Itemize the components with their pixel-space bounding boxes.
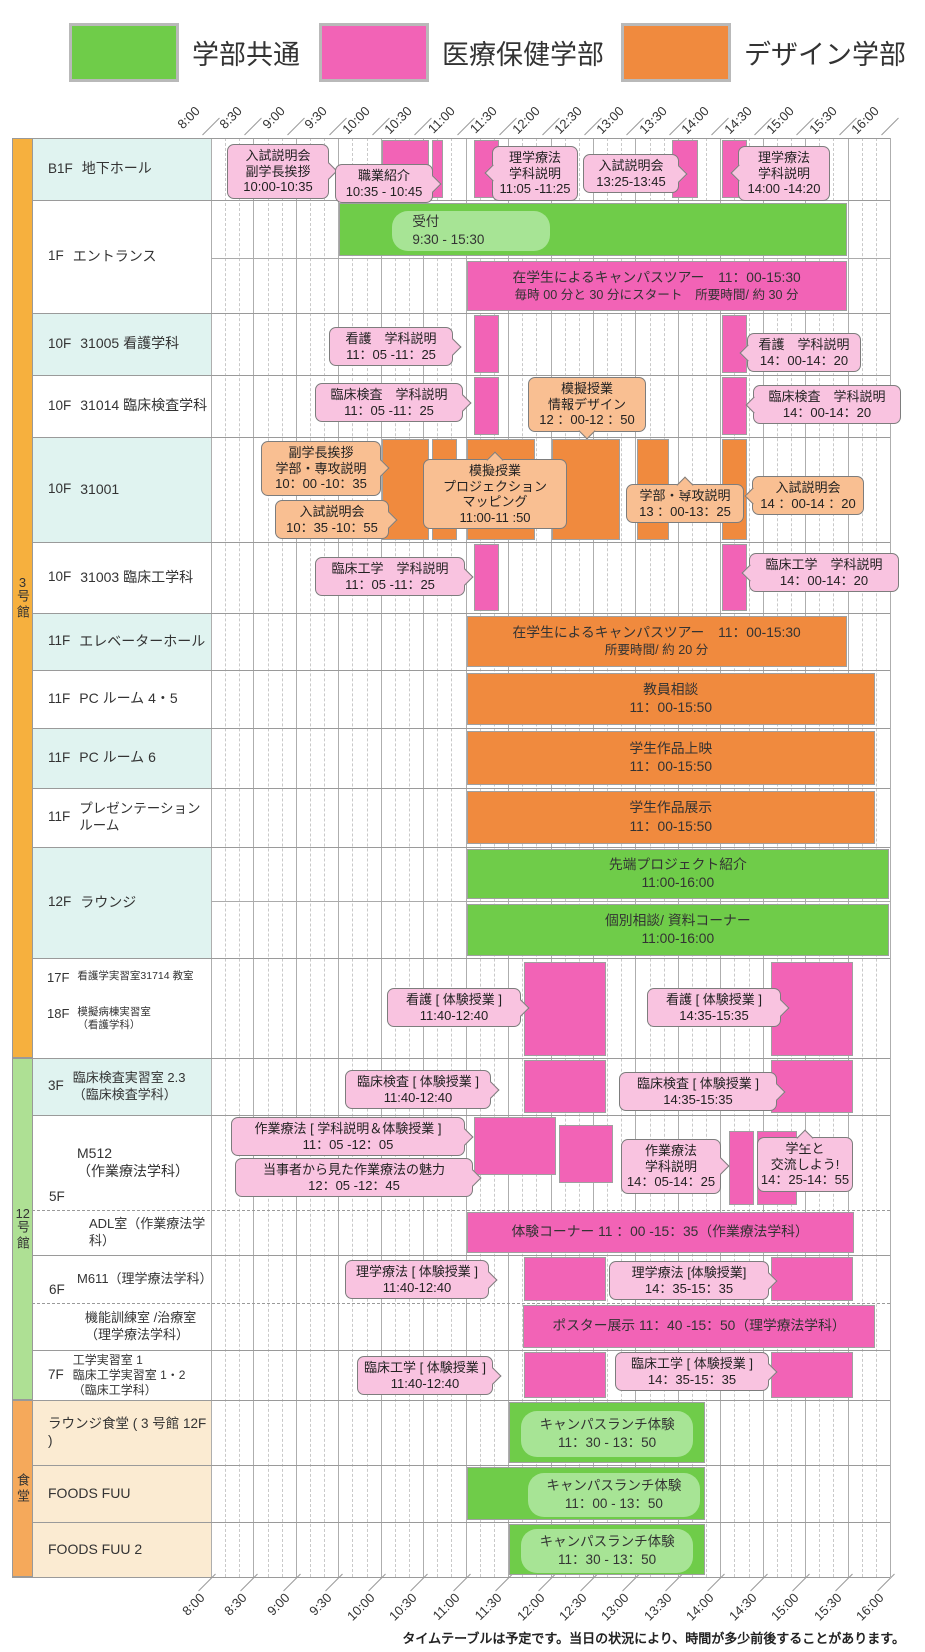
room-name: 看護学実習室31714 教室 <box>77 970 193 983</box>
event-pill: キャンパスランチ体験11：00 - 13：50 <box>528 1473 700 1517</box>
row-events: キャンパスランチ体験11：00 - 13：50 <box>211 1465 890 1522</box>
room-name-line: ラウンジ <box>80 894 136 912</box>
room-name-line: FOODS FUU 2 <box>48 1541 142 1559</box>
row-events: 受付9:30 - 15:30在学生によるキャンパスツアー 11：00-15:30… <box>211 200 890 313</box>
room-name-line: エレベーターホール <box>79 633 205 651</box>
event-block <box>474 377 499 435</box>
event-callout-line: 11:40-12:40 <box>390 1008 518 1024</box>
event-banner: キャンパスランチ体験11：30 - 13：50 <box>509 1402 705 1463</box>
event-callout-line: 14：35-15：35 <box>618 1372 766 1388</box>
floor-label: 11F <box>48 809 70 826</box>
event-pill-line: キャンパスランチ体験 <box>521 1416 693 1434</box>
event-callout-line: 13 ：00-13：25 <box>629 504 741 520</box>
room-name-line: 地下ホール <box>82 160 152 178</box>
row-events: 教員相談11：00-15:50 <box>211 670 890 728</box>
event-callout-line: 副学長挨拶 <box>230 164 326 180</box>
row-events: 在学生によるキャンパスツアー 11：00-15:30所要時間/ 約 20 分 <box>211 613 890 670</box>
event-callout: 看護 [ 体験授業 ]11:40-12:40 <box>387 988 521 1027</box>
row-events: ポスター展示 11：40 -15：50（理学療法学科） <box>211 1303 890 1350</box>
grid-line <box>890 138 891 1577</box>
event-callout: 模擬授業情報デザイン12 ：00-12 ：50 <box>528 377 646 432</box>
event-pill-line: 9:30 - 15:30 <box>412 231 550 249</box>
building-bar: 3号館 <box>12 138 33 1058</box>
building-bar-label: 3号館 <box>13 576 32 621</box>
row-events: 先端プロジェクト紹介11:00-16:00個別相談/ 資料コーナー11:00-1… <box>211 847 890 958</box>
room-name: 31005 看護学科 <box>80 335 179 353</box>
row-label: 17F看護学実習室31714 教室18F模擬病棟実習室（看護学科） <box>33 958 211 1058</box>
legend-label-medical: 医療保健学部 <box>442 33 604 72</box>
legend-item-common: 学部共通 <box>69 23 300 82</box>
event-banner: 先端プロジェクト紹介11:00-16:00 <box>467 849 889 899</box>
row-label: 11FPC ルーム 4・5 <box>33 670 211 728</box>
event-pill-line: キャンパスランチ体験 <box>521 1533 693 1551</box>
event-callout-line: 看護 学科説明 <box>750 337 858 353</box>
event-callout-line: 学科説明 <box>495 166 575 182</box>
event-callout: 理学療法 [体験授業]14：35-15：35 <box>609 1261 769 1300</box>
room-name: ADL室（作業療法学科） <box>89 1216 211 1249</box>
event-callout-line: 看護 学科説明 <box>332 331 450 347</box>
event-banner: キャンパスランチ体験11：30 - 13：50 <box>509 1524 705 1575</box>
row-events: 臨床工学 [ 体験授業 ]11:40-12:40臨床工学 [ 体験授業 ]14：… <box>211 1350 890 1400</box>
footnote: タイムテーブルは予定です。当日の状況により、時間が多少前後することがあります。 <box>0 1628 905 1647</box>
event-callout-line: 14:00 -14:20 <box>741 181 827 197</box>
row-label: ラウンジ食堂 ( 3 号館 12F ) <box>33 1400 211 1465</box>
event-block <box>722 544 747 611</box>
room-name: M512（作業療法学科） <box>77 1145 189 1180</box>
floor-label: 7F <box>48 1367 64 1384</box>
event-banner-line: 11:00-16:00 <box>642 874 715 892</box>
event-callout-line: マッピング <box>426 494 564 510</box>
event-banner: 教員相談11：00-15:50 <box>467 673 875 725</box>
event-pill-line: 11：30 - 13：50 <box>521 1434 693 1452</box>
event-callout-line: 13:25-13:45 <box>586 174 676 190</box>
event-callout-line: 11:40-12:40 <box>348 1090 488 1106</box>
event-callout-line: 看護 [ 体験授業 ] <box>650 992 778 1008</box>
row-events: 体験コーナー 11 ：00 -15：35（作業療法学科） <box>211 1210 890 1255</box>
event-block <box>524 1352 606 1398</box>
room-name: エレベーターホール <box>79 633 205 651</box>
event-callout: 理学療法学科説明14:00 -14:20 <box>738 146 830 201</box>
event-callout: 看護 学科説明11：05 -11：25 <box>329 327 453 366</box>
room-name-line: ラウンジ食堂 ( 3 号館 12F ) <box>48 1416 211 1450</box>
building-name: 食堂 <box>15 1473 30 1505</box>
floor-label: 11F <box>48 750 70 767</box>
event-banner-line: 11：00-15:50 <box>629 758 712 776</box>
event-callout: 副学長挨拶学部・専攻説明10：00 -10：35 <box>261 441 381 496</box>
event-block <box>771 1352 853 1398</box>
row-label: 10F31014 臨床検査学科 <box>33 375 211 437</box>
event-callout: 臨床検査 [ 体験授業 ]11:40-12:40 <box>345 1070 491 1109</box>
room-name: 31003 臨床工学科 <box>80 569 193 587</box>
event-block <box>559 1125 613 1183</box>
event-callout: 理学療法 [ 体験授業 ]11:40-12:40 <box>345 1260 489 1299</box>
room-name: FOODS FUU 2 <box>48 1541 142 1559</box>
event-callout: 職業紹介10:35 - 10:45 <box>335 164 433 203</box>
event-pill-line: 受付 <box>412 213 550 231</box>
row-label: FOODS FUU <box>33 1465 211 1522</box>
event-callout-line: 臨床検査 学科説明 <box>318 387 460 403</box>
event-banner: 学生作品上映11：00-15:50 <box>467 731 875 785</box>
event-callout-line: 入試説明会 <box>230 148 326 164</box>
event-callout-line: 理学療法 [ 体験授業 ] <box>348 1264 486 1280</box>
building-bar: 12号館 <box>12 1058 33 1400</box>
event-callout-line: 14：25-14：55 <box>760 1172 850 1188</box>
event-banner-line: 体験コーナー 11 ：00 -15：35（作業療法学科） <box>512 1223 809 1241</box>
room-name: 工学実習室 1臨床工学実習室 1・2（臨床工学科） <box>73 1353 186 1398</box>
event-callout-line: 11：05 -11：25 <box>318 577 462 593</box>
event-callout: 臨床工学 学科説明14：00-14：20 <box>749 553 899 592</box>
timetable-grid: B1F地下ホール入試説明会副学長挨拶10:00-10:35職業紹介10:35 -… <box>12 138 890 1577</box>
event-callout: 入試説明会副学長挨拶10:00-10:35 <box>227 144 329 199</box>
event-callout-line: 10:35 - 10:45 <box>338 184 430 200</box>
event-banner-line: 毎時 00 分と 30 分にスタート 所要時間/ 約 30 分 <box>515 287 799 304</box>
row-events: 作業療法 [ 学科説明＆体験授業 ]11：05 -12：05当事者から見た作業療… <box>211 1115 890 1210</box>
row-events: 学生作品展示11：00-15:50 <box>211 788 890 847</box>
legend-label-design: デザイン学部 <box>744 33 906 72</box>
room-name-line: 機能訓練室 /治療室 <box>85 1310 196 1326</box>
row-events: 理学療法 [ 体験授業 ]11:40-12:40理学療法 [体験授業]14：35… <box>211 1255 890 1303</box>
event-callout-line: 学部・専攻説明 <box>264 461 378 477</box>
row-label: 11Fプレゼンテーションルーム <box>33 788 211 847</box>
event-callout-line: 14：00-14：20 <box>750 353 858 369</box>
event-banner: キャンパスランチ体験11：00 - 13：50 <box>467 1467 705 1520</box>
event-callout-line: 14：00-14：20 <box>756 405 898 421</box>
event-banner-line: 学生作品上映 <box>629 740 712 758</box>
event-block <box>722 315 747 373</box>
row-events: キャンパスランチ体験11：30 - 13：50 <box>211 1400 890 1465</box>
event-callout-line: 11:05 -11:25 <box>495 181 575 197</box>
event-callout-line: 職業紹介 <box>338 168 430 184</box>
room-name-line: M512 <box>77 1145 189 1163</box>
room-name: M611（理学療法学科） <box>77 1271 211 1287</box>
room-name-line: 模擬病棟実習室 <box>77 1006 151 1019</box>
event-callout-line: 理学療法 <box>495 150 575 166</box>
event-banner-line: 所要時間/ 約 20 分 <box>605 642 709 659</box>
room-name-line: PC ルーム 6 <box>79 749 156 767</box>
floor-label: B1F <box>48 161 73 178</box>
row-label: 11Fエレベーターホール <box>33 613 211 670</box>
event-block <box>771 1257 853 1301</box>
event-callout-line: 臨床検査 [ 体験授業 ] <box>622 1076 774 1092</box>
room-name: ラウンジ食堂 ( 3 号館 12F ) <box>48 1416 211 1450</box>
event-banner: 体験コーナー 11 ：00 -15：35（作業療法学科） <box>467 1212 854 1253</box>
row-events: 臨床検査 学科説明11：05 -11：25模擬授業情報デザイン12 ：00-12… <box>211 375 890 437</box>
event-callout-line: 理学療法 [体験授業] <box>612 1265 766 1281</box>
event-callout: 作業療法 [ 学科説明＆体験授業 ]11：05 -12：05 <box>231 1117 465 1156</box>
row-label: 10F31003 臨床工学科 <box>33 542 211 613</box>
event-callout-line: 臨床工学 [ 体験授業 ] <box>618 1356 766 1372</box>
event-banner-line: 在学生によるキャンパスツアー 11：00-15:30 <box>512 624 800 642</box>
room-name: 地下ホール <box>82 160 152 178</box>
row-label: 1Fエントランス <box>33 200 211 313</box>
floor-label: 11F <box>48 633 70 650</box>
row-label: 5FM512（作業療法学科） <box>33 1115 211 1210</box>
event-callout-line: 臨床工学 学科説明 <box>318 561 462 577</box>
event-banner-line: 11：00-15:50 <box>629 818 712 836</box>
event-callout-line: 学科説明 <box>741 166 827 182</box>
event-callout-line: 学科説明 <box>624 1159 718 1175</box>
event-callout: 理学療法学科説明11:05 -11:25 <box>492 146 578 201</box>
room-name-line: PC ルーム 4・5 <box>79 690 177 708</box>
room-label-group: 17F看護学実習室31714 教室 <box>47 970 194 986</box>
room-name-line: 工学実習室 1 <box>73 1353 186 1368</box>
event-banner-line: 学生作品展示 <box>629 799 712 817</box>
event-banner: ポスター展示 11：40 -15：50（理学療法学科） <box>523 1305 875 1348</box>
room-name: PC ルーム 6 <box>79 749 156 767</box>
row-label: 6FM611（理学療法学科） <box>33 1255 211 1303</box>
room-name-line: 31001 <box>80 481 119 499</box>
room-name: 機能訓練室 /治療室（理学療法学科） <box>85 1310 196 1343</box>
event-callout: 作業療法学科説明14：05-14：25 <box>621 1139 721 1194</box>
event-callout: 臨床検査 学科説明14：00-14：20 <box>753 385 901 424</box>
room-name: 臨床検査実習室 2.3（臨床検査学科） <box>73 1070 186 1103</box>
event-callout-line: 臨床検査 学科説明 <box>756 389 898 405</box>
room-name-line: 看護学実習室31714 教室 <box>77 970 193 983</box>
room-name-line: （臨床検査学科） <box>73 1087 186 1103</box>
room-name-line: （作業療法学科） <box>77 1163 189 1181</box>
floor-label: 10F <box>48 398 71 415</box>
event-callout-line: 10：35 -10：55 <box>278 520 386 536</box>
building-bar: 食堂 <box>12 1400 33 1577</box>
room-name-line: （臨床工学科） <box>73 1383 186 1398</box>
floor-label: 5F <box>49 1189 65 1206</box>
event-callout-line: 入試説明会 <box>278 504 386 520</box>
event-pill: キャンパスランチ体験11：30 - 13：50 <box>521 1411 693 1457</box>
building-bar-label: 食堂 <box>13 1473 32 1505</box>
legend-label-common: 学部共通 <box>192 33 300 72</box>
building-name: 号館 <box>15 1220 30 1252</box>
event-callout: 学生と交流しよう!14：25-14：55 <box>757 1137 853 1192</box>
event-block <box>524 962 606 1056</box>
event-callout-line: 14：05-14：25 <box>624 1174 718 1190</box>
event-block <box>524 1060 606 1113</box>
room-name-line: 31014 臨床検査学科 <box>80 397 207 415</box>
floor-label: 6F <box>49 1282 65 1299</box>
floor-label: 12F <box>48 894 71 911</box>
timetable-poster: 学部共通 医療保健学部 デザイン学部 8:008:309:009:3010:00… <box>0 0 925 1652</box>
event-callout-line: 14:35-15:35 <box>622 1092 774 1108</box>
room-name: 模擬病棟実習室（看護学科） <box>77 1006 151 1032</box>
event-pill: キャンパスランチ体験11：30 - 13：50 <box>521 1529 693 1573</box>
event-block <box>474 1117 556 1175</box>
event-banner: 在学生によるキャンパスツアー 11：00-15:30所要時間/ 約 20 分 <box>467 616 847 667</box>
event-banner-line: 個別相談/ 資料コーナー <box>605 912 751 930</box>
event-banner-line: 11：00-15:50 <box>629 699 712 717</box>
room-name: FOODS FUU <box>48 1485 130 1503</box>
room-name: 31014 臨床検査学科 <box>80 397 207 415</box>
event-callout-line: 作業療法 [ 学科説明＆体験授業 ] <box>234 1121 462 1137</box>
row-events: 副学長挨拶学部・専攻説明10：00 -10：35入試説明会10：35 -10：5… <box>211 437 890 542</box>
row-events: 学生作品上映11：00-15:50 <box>211 728 890 788</box>
floor-label: 18F <box>47 1006 69 1022</box>
room-label-group: 18F模擬病棟実習室（看護学科） <box>47 1006 151 1032</box>
event-block <box>722 377 747 435</box>
event-callout: 看護 学科説明14：00-14：20 <box>747 333 861 372</box>
event-banner-line: ポスター展示 11：40 -15：50（理学療法学科） <box>552 1317 845 1335</box>
room-name-line: ADL室（作業療法学科） <box>89 1216 211 1249</box>
building-bar-label: 12号館 <box>13 1207 32 1252</box>
room-name-line: エントランス <box>73 248 157 266</box>
event-banner-line: 在学生によるキャンパスツアー 11：00-15:30 <box>512 269 800 287</box>
event-callout-line: 看護 [ 体験授業 ] <box>390 992 518 1008</box>
event-block <box>474 544 499 611</box>
event-banner: 受付9:30 - 15:30 <box>339 203 846 256</box>
event-callout: 模擬授業プロジェクションマッピング11:00-11 :50 <box>423 459 567 529</box>
event-callout-line: 臨床検査 [ 体験授業 ] <box>348 1074 488 1090</box>
event-callout-line: 14：35-15：35 <box>612 1281 766 1297</box>
event-callout: 臨床検査 学科説明11：05 -11：25 <box>315 383 463 422</box>
event-callout-line: 11:00-11 :50 <box>426 510 564 526</box>
event-callout-line: 11:40-12:40 <box>360 1376 490 1392</box>
event-callout: 学部・専攻説明13 ：00-13：25 <box>626 484 744 523</box>
event-banner-line: 先端プロジェクト紹介 <box>609 856 747 874</box>
room-name-line: 臨床工学実習室 1・2 <box>73 1368 186 1383</box>
row-label: 機能訓練室 /治療室（理学療法学科） <box>33 1303 211 1350</box>
event-pill-line: 11：30 - 13：50 <box>521 1551 693 1569</box>
event-callout: 臨床工学 [ 体験授業 ]14：35-15：35 <box>615 1352 769 1391</box>
event-callout-line: 14:35-15:35 <box>650 1008 778 1024</box>
event-callout-line: 14 ：00-14 ：20 <box>755 496 861 512</box>
event-callout-line: 11：05 -12：05 <box>234 1137 462 1153</box>
event-callout-line: 臨床工学 [ 体験授業 ] <box>360 1360 490 1376</box>
room-name-line: プレゼンテーション <box>79 801 200 818</box>
event-callout-line: 臨床工学 学科説明 <box>752 557 896 573</box>
event-callout-line: プロジェクション <box>426 479 564 495</box>
room-name-line: FOODS FUU <box>48 1485 130 1503</box>
row-events: 臨床検査 [ 体験授業 ]11:40-12:40臨床検査 [ 体験授業 ]14:… <box>211 1058 890 1115</box>
event-callout-line: 副学長挨拶 <box>264 445 378 461</box>
floor-label: 11F <box>48 691 70 708</box>
room-name: エントランス <box>73 248 157 266</box>
event-callout: 当事者から見た作業療法の魅力12：05 -12：45 <box>235 1158 473 1197</box>
room-name: ラウンジ <box>80 894 136 912</box>
building-number: 3 <box>15 576 30 589</box>
legend-item-design: デザイン学部 <box>621 23 906 82</box>
room-name-line: 臨床検査実習室 2.3 <box>73 1070 186 1086</box>
legend-swatch-medical <box>319 23 429 82</box>
event-block <box>771 1060 853 1113</box>
room-name: 31001 <box>80 481 119 499</box>
row-label: 10F31001 <box>33 437 211 542</box>
event-callout-line: 作業療法 <box>624 1143 718 1159</box>
floor-label: 17F <box>47 970 69 986</box>
row-label: 10F31005 看護学科 <box>33 313 211 375</box>
row-events: 入試説明会副学長挨拶10:00-10:35職業紹介10:35 - 10:45理学… <box>211 138 890 200</box>
event-callout: 臨床工学 [ 体験授業 ]11:40-12:40 <box>357 1356 493 1395</box>
event-callout: 入試説明会13:25-13:45 <box>583 154 679 193</box>
event-pill-line: 11：00 - 13：50 <box>528 1495 700 1513</box>
room-name-line: 31005 看護学科 <box>80 335 179 353</box>
floor-label: 1F <box>48 248 64 265</box>
event-callout-line: 11：05 -11：25 <box>318 403 460 419</box>
event-block <box>474 315 499 373</box>
event-callout-line: 情報デザイン <box>531 397 643 413</box>
legend-item-medical: 医療保健学部 <box>319 23 604 82</box>
event-callout: 入試説明会14 ：00-14 ：20 <box>752 476 864 515</box>
floor-label: 10F <box>48 336 71 353</box>
floor-label: 3F <box>48 1078 64 1095</box>
room-name: プレゼンテーションルーム <box>79 801 200 835</box>
event-callout-line: 11:40-12:40 <box>348 1280 486 1296</box>
event-callout: 入試説明会10：35 -10：55 <box>275 500 389 539</box>
axis-tick <box>881 118 899 136</box>
event-banner-line: 11:00-16:00 <box>642 930 715 948</box>
row-label: ADL室（作業療法学科） <box>33 1210 211 1255</box>
room-name-line: （理学療法学科） <box>85 1327 196 1343</box>
row-events: 看護 学科説明11：05 -11：25看護 学科説明14：00-14：20 <box>211 313 890 375</box>
row-events: キャンパスランチ体験11：30 - 13：50 <box>211 1522 890 1577</box>
event-banner: 個別相談/ 資料コーナー11:00-16:00 <box>467 904 889 956</box>
event-callout-line: 14：00-14：20 <box>752 573 896 589</box>
event-block <box>729 1131 754 1205</box>
event-banner-line: 教員相談 <box>643 681 698 699</box>
event-callout-line: 模擬授業 <box>531 381 643 397</box>
row-events: 看護 [ 体験授業 ]11:40-12:40看護 [ 体験授業 ]14:35-1… <box>211 958 890 1058</box>
event-callout-line: 理学療法 <box>741 150 827 166</box>
event-pill: 受付9:30 - 15:30 <box>392 211 550 251</box>
event-callout-line: 当事者から見た作業療法の魅力 <box>238 1162 470 1178</box>
event-callout-line: 交流しよう! <box>760 1157 850 1173</box>
legend-swatch-design <box>621 23 731 82</box>
row-label: B1F地下ホール <box>33 138 211 200</box>
event-callout-line: 11：05 -11：25 <box>332 347 450 363</box>
event-pill-line: キャンパスランチ体験 <box>528 1477 700 1495</box>
floor-label: 10F <box>48 481 71 498</box>
row-events: 臨床工学 学科説明11：05 -11：25臨床工学 学科説明14：00-14：2… <box>211 542 890 613</box>
event-callout-line: 12：05 -12：45 <box>238 1178 470 1194</box>
legend-swatch-common <box>69 23 179 82</box>
room-name-line: ルーム <box>79 818 200 835</box>
room-name: PC ルーム 4・5 <box>79 690 177 708</box>
event-callout: 臨床工学 学科説明11：05 -11：25 <box>315 557 465 596</box>
row-label: 11FPC ルーム 6 <box>33 728 211 788</box>
event-banner: 在学生によるキャンパスツアー 11：00-15:30毎時 00 分と 30 分に… <box>467 261 847 311</box>
event-banner: 学生作品展示11：00-15:50 <box>467 791 875 844</box>
row-label: 12Fラウンジ <box>33 847 211 958</box>
floor-label: 10F <box>48 569 71 586</box>
building-number: 12 <box>15 1207 30 1220</box>
event-callout: 看護 [ 体験授業 ]14:35-15:35 <box>647 988 781 1027</box>
event-callout-line: 10：00 -10：35 <box>264 476 378 492</box>
table-bottom-border <box>12 1577 890 1578</box>
event-block <box>524 1257 606 1301</box>
event-callout-line: 10:00-10:35 <box>230 179 326 195</box>
event-callout: 臨床検査 [ 体験授業 ]14:35-15:35 <box>619 1072 777 1111</box>
row-label: 7F工学実習室 1臨床工学実習室 1・2（臨床工学科） <box>33 1350 211 1400</box>
room-name-line: M611（理学療法学科） <box>77 1271 211 1287</box>
building-name: 号館 <box>15 589 30 621</box>
room-name-line: （看護学科） <box>77 1019 151 1032</box>
room-name-line: 31003 臨床工学科 <box>80 569 193 587</box>
row-label: FOODS FUU 2 <box>33 1522 211 1577</box>
event-callout-line: 入試説明会 <box>755 480 861 496</box>
row-label: 3F臨床検査実習室 2.3（臨床検査学科） <box>33 1058 211 1115</box>
event-callout-line: 入試説明会 <box>586 158 676 174</box>
